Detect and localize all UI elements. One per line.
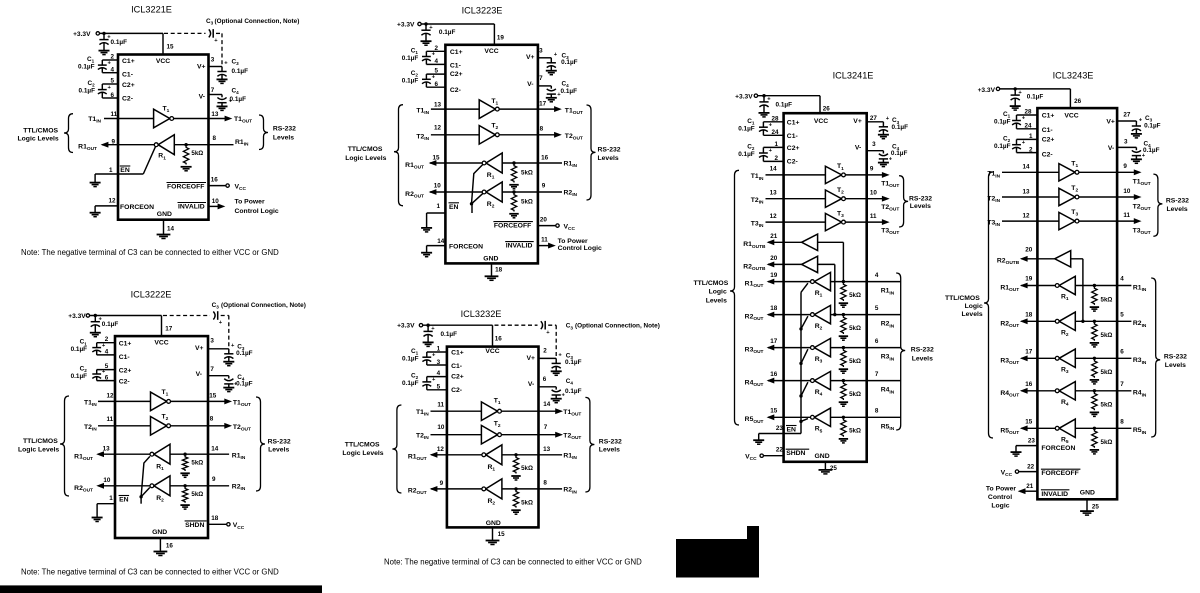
svg-text:4: 4 — [437, 370, 441, 377]
svg-text:22: 22 — [776, 447, 784, 454]
svg-text:7: 7 — [544, 424, 548, 431]
svg-text:GND: GND — [483, 256, 498, 263]
svg-text:13: 13 — [770, 190, 778, 197]
svg-text:5kΩ: 5kΩ — [849, 292, 861, 299]
svg-text:5kΩ: 5kΩ — [1101, 296, 1113, 303]
svg-text:+3.3V: +3.3V — [73, 31, 91, 38]
svg-text:C1+: C1+ — [1042, 112, 1055, 119]
svg-text:GND: GND — [815, 453, 830, 460]
svg-text:0.1µF: 0.1µF — [79, 88, 96, 95]
svg-text:EN: EN — [449, 204, 459, 211]
svg-text:C2-: C2- — [119, 378, 130, 385]
svg-text:RS-232: RS-232 — [1166, 198, 1189, 205]
svg-text:15: 15 — [167, 44, 175, 51]
svg-text:EN: EN — [787, 427, 797, 434]
svg-text:1: 1 — [775, 141, 779, 148]
svg-text:20: 20 — [1025, 246, 1033, 253]
svg-text:20: 20 — [540, 217, 548, 224]
svg-text:+3.3V: +3.3V — [397, 323, 415, 330]
svg-text:5kΩ: 5kΩ — [191, 459, 203, 466]
svg-text:5kΩ: 5kΩ — [849, 358, 861, 365]
svg-text:RS-232: RS-232 — [911, 347, 934, 354]
svg-text:7: 7 — [211, 87, 215, 94]
svg-text:RS-232: RS-232 — [909, 196, 932, 203]
svg-text:2: 2 — [775, 155, 779, 162]
svg-text:0.1µF: 0.1µF — [111, 39, 128, 46]
svg-text:ICL3222E: ICL3222E — [131, 290, 172, 300]
svg-text:7: 7 — [210, 366, 214, 373]
svg-text:0.1µF: 0.1µF — [236, 380, 253, 387]
svg-text:4: 4 — [105, 349, 109, 356]
svg-text:1: 1 — [1029, 133, 1033, 140]
svg-text:5: 5 — [1120, 311, 1124, 318]
svg-text:5kΩ: 5kΩ — [191, 491, 203, 498]
svg-text:5kΩ: 5kΩ — [521, 198, 533, 205]
svg-text:To Power: To Power — [235, 199, 265, 206]
svg-text:11: 11 — [437, 402, 444, 409]
svg-text:5: 5 — [105, 363, 109, 370]
svg-text:10: 10 — [434, 183, 442, 190]
svg-text:C2-: C2- — [450, 87, 461, 94]
svg-text:6: 6 — [1120, 348, 1124, 355]
svg-text:5kΩ: 5kΩ — [1101, 369, 1113, 376]
svg-text:INVALID: INVALID — [178, 204, 205, 211]
svg-text:Control Logic: Control Logic — [558, 245, 602, 252]
svg-text:13: 13 — [211, 111, 219, 118]
svg-text:ICL3221E: ICL3221E — [131, 5, 172, 15]
svg-text:2: 2 — [111, 54, 115, 61]
svg-text:3: 3 — [210, 338, 214, 345]
svg-text:12: 12 — [770, 213, 778, 220]
svg-text:0.1µF: 0.1µF — [441, 331, 458, 338]
svg-text:3: 3 — [1124, 139, 1128, 146]
svg-text:Control Logic: Control Logic — [235, 208, 279, 215]
svg-text:22: 22 — [1027, 463, 1035, 470]
svg-text:GND: GND — [157, 211, 172, 218]
svg-text:24: 24 — [1025, 123, 1033, 130]
svg-text:11: 11 — [541, 237, 548, 244]
svg-text:14: 14 — [543, 401, 551, 408]
svg-text:18: 18 — [770, 305, 778, 312]
svg-text:0.1µF: 0.1µF — [402, 356, 419, 363]
svg-text:15: 15 — [1025, 418, 1033, 425]
svg-text:TTL/CMOS: TTL/CMOS — [945, 295, 980, 302]
svg-text:0.1µF: 0.1µF — [102, 321, 119, 328]
svg-text:5kΩ: 5kΩ — [849, 391, 861, 398]
svg-text:FORCEOFF: FORCEOFF — [167, 184, 204, 191]
svg-text:1: 1 — [436, 203, 440, 210]
svg-text:INVALID: INVALID — [1041, 491, 1068, 498]
svg-text:VCC: VCC — [156, 58, 170, 65]
svg-text:2: 2 — [1029, 146, 1033, 153]
svg-text:18: 18 — [211, 515, 219, 522]
svg-text:+3.3V: +3.3V — [978, 87, 996, 94]
svg-text:14: 14 — [167, 226, 175, 233]
svg-text:8: 8 — [213, 135, 217, 142]
svg-text:Levels: Levels — [962, 311, 983, 318]
svg-text:1: 1 — [437, 346, 441, 353]
svg-text:FORCEOFF: FORCEOFF — [1041, 470, 1078, 477]
svg-text:7: 7 — [539, 75, 543, 82]
svg-text:25: 25 — [1092, 503, 1100, 510]
svg-text:0.1µF: 0.1µF — [561, 88, 578, 95]
svg-text:0.1µF: 0.1µF — [236, 350, 253, 357]
svg-text:9: 9 — [440, 480, 444, 487]
svg-text:17: 17 — [770, 338, 778, 345]
svg-text:0.1µF: 0.1µF — [1144, 122, 1161, 129]
svg-text:23: 23 — [1028, 437, 1036, 444]
svg-text:C2+: C2+ — [119, 367, 132, 374]
svg-text:+3.3V: +3.3V — [735, 93, 753, 100]
svg-text:RS-232: RS-232 — [273, 126, 296, 133]
svg-text:FORCEON: FORCEON — [449, 244, 483, 251]
svg-text:C1+: C1+ — [122, 58, 135, 65]
svg-text:+3.3V: +3.3V — [68, 313, 86, 320]
svg-text:12: 12 — [434, 125, 442, 132]
svg-text:12: 12 — [108, 198, 116, 205]
svg-text:0.1µF: 0.1µF — [738, 125, 755, 132]
svg-text:5kΩ: 5kΩ — [521, 465, 533, 472]
svg-text:11: 11 — [111, 111, 118, 118]
svg-text:V-: V- — [199, 93, 205, 100]
svg-text:23: 23 — [776, 425, 784, 432]
svg-text:3: 3 — [539, 48, 543, 55]
svg-text:C2-: C2- — [1042, 151, 1053, 158]
svg-text:TTL/CMOS: TTL/CMOS — [23, 127, 58, 134]
svg-text:9: 9 — [870, 166, 874, 173]
svg-text:GND: GND — [1080, 489, 1095, 496]
svg-text:C2-: C2- — [787, 158, 798, 165]
svg-text:0.1µF: 0.1µF — [565, 388, 582, 395]
svg-text:VCC: VCC — [1064, 112, 1078, 119]
svg-text:21: 21 — [1026, 483, 1034, 490]
svg-text:9: 9 — [542, 182, 546, 189]
svg-text:C2+: C2+ — [787, 145, 800, 152]
svg-text:(Optional Connection, Note): (Optional Connection, Note) — [215, 18, 300, 25]
svg-text:10: 10 — [1123, 188, 1131, 195]
svg-text:Levels: Levels — [598, 155, 619, 162]
svg-text:8: 8 — [1120, 418, 1124, 425]
svg-text:TTL/CMOS: TTL/CMOS — [348, 146, 383, 153]
svg-text:ICL3232E: ICL3232E — [461, 309, 502, 319]
svg-text:8: 8 — [543, 480, 547, 487]
svg-text:V+: V+ — [197, 64, 206, 71]
svg-text:16: 16 — [1025, 381, 1033, 388]
svg-text:C2-: C2- — [122, 95, 133, 102]
svg-text:20: 20 — [770, 255, 778, 262]
svg-text:17: 17 — [1025, 348, 1033, 355]
svg-text:3: 3 — [437, 359, 441, 366]
svg-text:(Optional Connection, Note): (Optional Connection, Note) — [221, 302, 306, 309]
svg-text:13: 13 — [543, 446, 551, 453]
svg-text:0.1µF: 0.1µF — [439, 29, 456, 36]
svg-text:Control: Control — [988, 494, 1012, 501]
svg-text:8: 8 — [210, 415, 214, 422]
svg-text:VCC: VCC — [484, 48, 498, 55]
svg-text:VCC: VCC — [154, 340, 168, 347]
svg-text:8: 8 — [540, 125, 544, 132]
svg-text:5kΩ: 5kΩ — [1101, 332, 1113, 339]
svg-text:Levels: Levels — [706, 298, 727, 305]
svg-text:0.1µF: 0.1µF — [565, 359, 582, 366]
svg-text:Levels: Levels — [273, 135, 294, 142]
svg-text:14: 14 — [437, 238, 445, 245]
svg-text:4: 4 — [111, 67, 115, 74]
svg-text:V-: V- — [1108, 145, 1114, 152]
svg-text:+3.3V: +3.3V — [397, 22, 415, 29]
svg-text:(Optional Connection, Note): (Optional Connection, Note) — [575, 323, 660, 330]
svg-text:15: 15 — [770, 408, 778, 415]
svg-text:13: 13 — [434, 101, 442, 108]
svg-text:TTL/CMOS: TTL/CMOS — [694, 280, 729, 287]
svg-text:ICL3241E: ICL3241E — [833, 71, 874, 81]
svg-text:FORCEON: FORCEON — [120, 204, 154, 211]
svg-text:VCC: VCC — [814, 118, 828, 125]
svg-text:Note: The negative terminal of: Note: The negative terminal of C3 can be… — [384, 557, 642, 566]
svg-text:0.1µF: 0.1µF — [71, 373, 88, 380]
svg-text:GND: GND — [152, 529, 167, 536]
svg-text:INVALID: INVALID — [506, 243, 533, 250]
svg-text:26: 26 — [1074, 98, 1082, 105]
svg-text:19: 19 — [770, 272, 778, 279]
svg-text:5: 5 — [111, 78, 115, 85]
svg-text:19: 19 — [497, 35, 505, 42]
svg-text:1: 1 — [109, 167, 113, 174]
svg-text:C2+: C2+ — [122, 82, 135, 89]
svg-text:8: 8 — [875, 408, 879, 415]
svg-text:C1+: C1+ — [119, 340, 132, 347]
svg-text:Levels: Levels — [1167, 206, 1188, 213]
svg-text:Logic Levels: Logic Levels — [345, 155, 386, 162]
svg-text:V+: V+ — [1106, 119, 1115, 126]
svg-text:15: 15 — [209, 393, 217, 400]
svg-text:28: 28 — [1025, 109, 1033, 116]
svg-text:C2+: C2+ — [451, 373, 464, 380]
svg-text:C1+: C1+ — [451, 350, 464, 357]
svg-text:C1+: C1+ — [450, 49, 463, 56]
svg-text:RS-232: RS-232 — [599, 438, 622, 445]
svg-text:17: 17 — [539, 100, 547, 107]
svg-text:6: 6 — [435, 81, 439, 88]
svg-text:V-: V- — [527, 81, 533, 88]
svg-text:V-: V- — [196, 371, 202, 378]
svg-text:0.1µF: 0.1µF — [230, 96, 247, 103]
svg-text:C2-: C2- — [451, 387, 462, 394]
svg-text:Note: The negative terminal of: Note: The negative terminal of C3 can be… — [21, 248, 279, 257]
svg-text:TTL/CMOS: TTL/CMOS — [345, 441, 380, 448]
svg-text:21: 21 — [770, 233, 778, 240]
svg-text:C1-: C1- — [787, 133, 798, 140]
svg-text:0.1µF: 0.1µF — [1143, 147, 1160, 154]
svg-text:11: 11 — [1123, 212, 1130, 219]
svg-text:7: 7 — [1120, 381, 1124, 388]
svg-text:9: 9 — [1123, 163, 1127, 170]
svg-text:C1-: C1- — [122, 71, 133, 78]
svg-text:27: 27 — [1123, 112, 1131, 119]
svg-text:16: 16 — [211, 177, 219, 184]
svg-text:RS-232: RS-232 — [598, 146, 621, 153]
svg-text:6: 6 — [105, 374, 109, 381]
svg-text:0.1µF: 0.1µF — [738, 151, 755, 158]
svg-text:12: 12 — [437, 446, 445, 453]
svg-text:C1-: C1- — [450, 62, 461, 69]
svg-text:C1-: C1- — [119, 354, 130, 361]
svg-text:16: 16 — [541, 154, 549, 161]
svg-text:3: 3 — [211, 57, 215, 64]
svg-text:RS-232: RS-232 — [1164, 354, 1187, 361]
svg-text:0.1µF: 0.1µF — [776, 102, 793, 109]
svg-text:C1-: C1- — [1042, 127, 1053, 134]
svg-text:14: 14 — [1023, 164, 1031, 171]
svg-text:RS-232: RS-232 — [268, 438, 291, 445]
svg-text:12: 12 — [107, 393, 115, 400]
svg-text:2: 2 — [543, 348, 547, 355]
svg-text:To Power: To Power — [558, 238, 588, 245]
svg-text:0.1µF: 0.1µF — [402, 55, 419, 62]
svg-text:Logic: Logic — [991, 502, 1009, 509]
svg-text:0.1µF: 0.1µF — [402, 380, 419, 387]
svg-text:5kΩ: 5kΩ — [849, 428, 861, 435]
svg-text:0.1µF: 0.1µF — [892, 124, 909, 131]
svg-text:5: 5 — [437, 384, 441, 391]
svg-text:9: 9 — [212, 476, 216, 483]
svg-text:2: 2 — [105, 336, 109, 343]
svg-text:6: 6 — [111, 92, 115, 99]
svg-text:Logic Levels: Logic Levels — [18, 135, 59, 142]
svg-text:V+: V+ — [526, 54, 535, 61]
svg-text:17: 17 — [165, 326, 173, 333]
svg-text:6: 6 — [543, 376, 547, 383]
svg-text:Levels: Levels — [912, 355, 933, 362]
svg-text:0.1µF: 0.1µF — [402, 78, 419, 85]
svg-text:C2+: C2+ — [1042, 136, 1055, 143]
svg-text:5kΩ: 5kΩ — [191, 150, 203, 157]
svg-text:TTL/CMOS: TTL/CMOS — [23, 438, 58, 445]
svg-text:VCC: VCC — [485, 348, 499, 355]
svg-text:2: 2 — [435, 45, 439, 52]
svg-text:10: 10 — [870, 190, 878, 197]
svg-text:FORCEON: FORCEON — [1041, 445, 1075, 452]
svg-text:0.1µF: 0.1µF — [1027, 94, 1044, 101]
svg-text:FORCEOFF: FORCEOFF — [494, 223, 531, 230]
svg-text:GND: GND — [486, 520, 501, 527]
svg-text:To Power: To Power — [986, 486, 1016, 493]
svg-text:28: 28 — [772, 115, 780, 122]
svg-text:0.1µF: 0.1µF — [891, 150, 908, 157]
svg-text:EN: EN — [120, 167, 130, 174]
svg-text:18: 18 — [495, 266, 503, 273]
svg-text:6: 6 — [875, 338, 879, 345]
svg-text:16: 16 — [770, 371, 778, 378]
svg-text:0.1µF: 0.1µF — [71, 346, 88, 353]
svg-text:EN: EN — [119, 497, 129, 504]
svg-text:V+: V+ — [195, 345, 204, 352]
svg-text:Logic: Logic — [965, 303, 983, 310]
svg-text:0.1µF: 0.1µF — [994, 119, 1011, 126]
svg-text:Levels: Levels — [599, 446, 620, 453]
svg-text:27: 27 — [870, 115, 878, 122]
svg-text:12: 12 — [1023, 213, 1031, 220]
svg-text:14: 14 — [211, 446, 219, 453]
svg-text:V+: V+ — [526, 355, 535, 362]
svg-text:4: 4 — [875, 272, 879, 279]
svg-text:C2+: C2+ — [450, 71, 463, 78]
svg-text:V-: V- — [528, 381, 534, 388]
svg-text:16: 16 — [166, 543, 174, 550]
svg-text:Logic Levels: Logic Levels — [342, 450, 383, 457]
svg-text:V+: V+ — [853, 118, 862, 125]
svg-text:18: 18 — [1025, 311, 1033, 318]
svg-text:19: 19 — [1025, 276, 1033, 283]
svg-text:10: 10 — [437, 424, 445, 431]
svg-text:5kΩ: 5kΩ — [521, 169, 533, 176]
svg-text:+: + — [431, 326, 435, 332]
svg-text:0.1µF: 0.1µF — [232, 68, 249, 75]
svg-text:13: 13 — [1023, 188, 1031, 195]
svg-text:ICL3223E: ICL3223E — [462, 6, 503, 16]
svg-text:4: 4 — [1120, 276, 1124, 283]
svg-text:11: 11 — [107, 416, 114, 423]
svg-text:26: 26 — [823, 106, 831, 113]
svg-text:5kΩ: 5kΩ — [1101, 402, 1113, 409]
svg-text:Note: The negative terminal of: Note: The negative terminal of C3 can be… — [21, 568, 279, 577]
svg-text:V-: V- — [855, 145, 861, 152]
svg-text:Levels: Levels — [910, 203, 931, 210]
svg-text:14: 14 — [770, 166, 778, 173]
svg-text:15: 15 — [498, 531, 506, 538]
svg-text:5kΩ: 5kΩ — [1101, 439, 1113, 446]
svg-text:7: 7 — [875, 371, 879, 378]
svg-text:Logic Levels: Logic Levels — [18, 447, 59, 454]
svg-text:Levels: Levels — [268, 447, 289, 454]
svg-text:C1+: C1+ — [787, 119, 800, 126]
svg-text:10: 10 — [103, 477, 111, 484]
svg-text:5kΩ: 5kΩ — [521, 499, 533, 506]
svg-text:Logic: Logic — [709, 289, 727, 296]
svg-text:0.1µF: 0.1µF — [78, 64, 95, 71]
svg-text:25: 25 — [830, 465, 838, 472]
svg-text:0.1µF: 0.1µF — [561, 59, 578, 66]
svg-text:0.1µF: 0.1µF — [994, 143, 1011, 150]
svg-text:5kΩ: 5kΩ — [849, 325, 861, 332]
svg-text:16: 16 — [495, 336, 503, 343]
svg-text:SHDN: SHDN — [786, 450, 805, 457]
svg-text:C1-: C1- — [451, 363, 462, 370]
svg-text:5: 5 — [435, 68, 439, 75]
svg-text:4: 4 — [435, 58, 439, 65]
svg-text:5: 5 — [875, 305, 879, 312]
svg-text:24: 24 — [772, 129, 780, 136]
svg-text:11: 11 — [870, 213, 877, 220]
svg-text:1: 1 — [109, 495, 113, 502]
svg-text:Levels: Levels — [1165, 362, 1186, 369]
svg-text:3: 3 — [872, 141, 876, 148]
svg-text:SHDN: SHDN — [185, 522, 204, 529]
svg-text:ICL3243E: ICL3243E — [1053, 71, 1094, 81]
